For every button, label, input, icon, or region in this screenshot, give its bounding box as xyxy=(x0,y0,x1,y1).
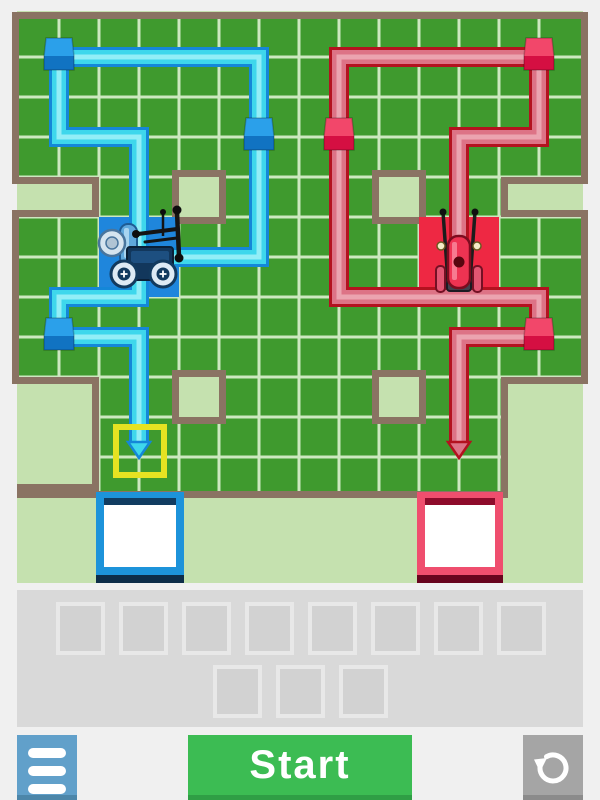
command-slot[interactable] xyxy=(434,602,483,655)
start-button-label: Start xyxy=(188,736,412,794)
menu-button[interactable] xyxy=(17,735,77,800)
obstacle-block xyxy=(372,370,426,424)
blue-cube xyxy=(44,38,74,70)
command-slot[interactable] xyxy=(119,602,168,655)
command-slot[interactable] xyxy=(308,602,357,655)
command-slot[interactable] xyxy=(339,665,388,718)
app-screen: Start xyxy=(0,0,600,800)
start-button[interactable]: Start xyxy=(188,735,412,800)
obstacle-block xyxy=(172,170,226,224)
command-slot[interactable] xyxy=(213,665,262,718)
wall-segment xyxy=(17,484,99,498)
command-slot[interactable] xyxy=(497,602,546,655)
blue-cube xyxy=(44,318,74,350)
reset-icon xyxy=(531,747,575,791)
blue-goal-box xyxy=(96,492,184,583)
obstacle-block xyxy=(172,370,226,424)
command-slot[interactable] xyxy=(56,602,105,655)
command-slot[interactable] xyxy=(245,602,294,655)
red-cube xyxy=(524,38,554,70)
red-cube xyxy=(524,318,554,350)
command-slot[interactable] xyxy=(371,602,420,655)
red-goal-box xyxy=(417,492,503,583)
game-board xyxy=(0,0,600,590)
obstacle-block xyxy=(372,170,426,224)
hamburger-icon xyxy=(17,737,77,794)
reset-button[interactable] xyxy=(523,735,583,800)
command-tray xyxy=(17,590,583,727)
blue-cube xyxy=(244,118,274,150)
command-slot[interactable] xyxy=(276,665,325,718)
command-slot[interactable] xyxy=(182,602,231,655)
red-cube xyxy=(324,118,354,150)
